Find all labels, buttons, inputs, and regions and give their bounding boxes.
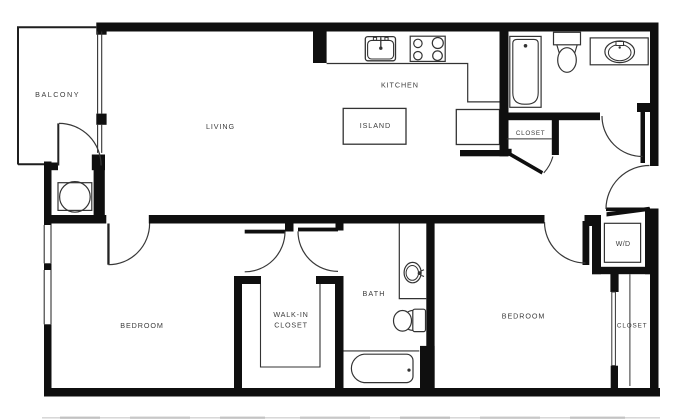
svg-text:BEDROOM: BEDROOM <box>502 312 545 321</box>
svg-text:BATH: BATH <box>362 289 385 298</box>
svg-text:CLOSET: CLOSET <box>617 323 648 330</box>
svg-text:W/D: W/D <box>616 241 631 248</box>
svg-text:ISLAND: ISLAND <box>360 121 391 130</box>
svg-text:LIVING: LIVING <box>206 122 235 131</box>
svg-text:KITCHEN: KITCHEN <box>381 81 419 90</box>
svg-text:WALK-IN: WALK-IN <box>273 310 308 319</box>
svg-text:BALCONY: BALCONY <box>35 90 80 99</box>
svg-text:BEDROOM: BEDROOM <box>120 321 163 330</box>
svg-text:CLOSET: CLOSET <box>516 130 545 137</box>
svg-text:CLOSET: CLOSET <box>274 321 308 330</box>
